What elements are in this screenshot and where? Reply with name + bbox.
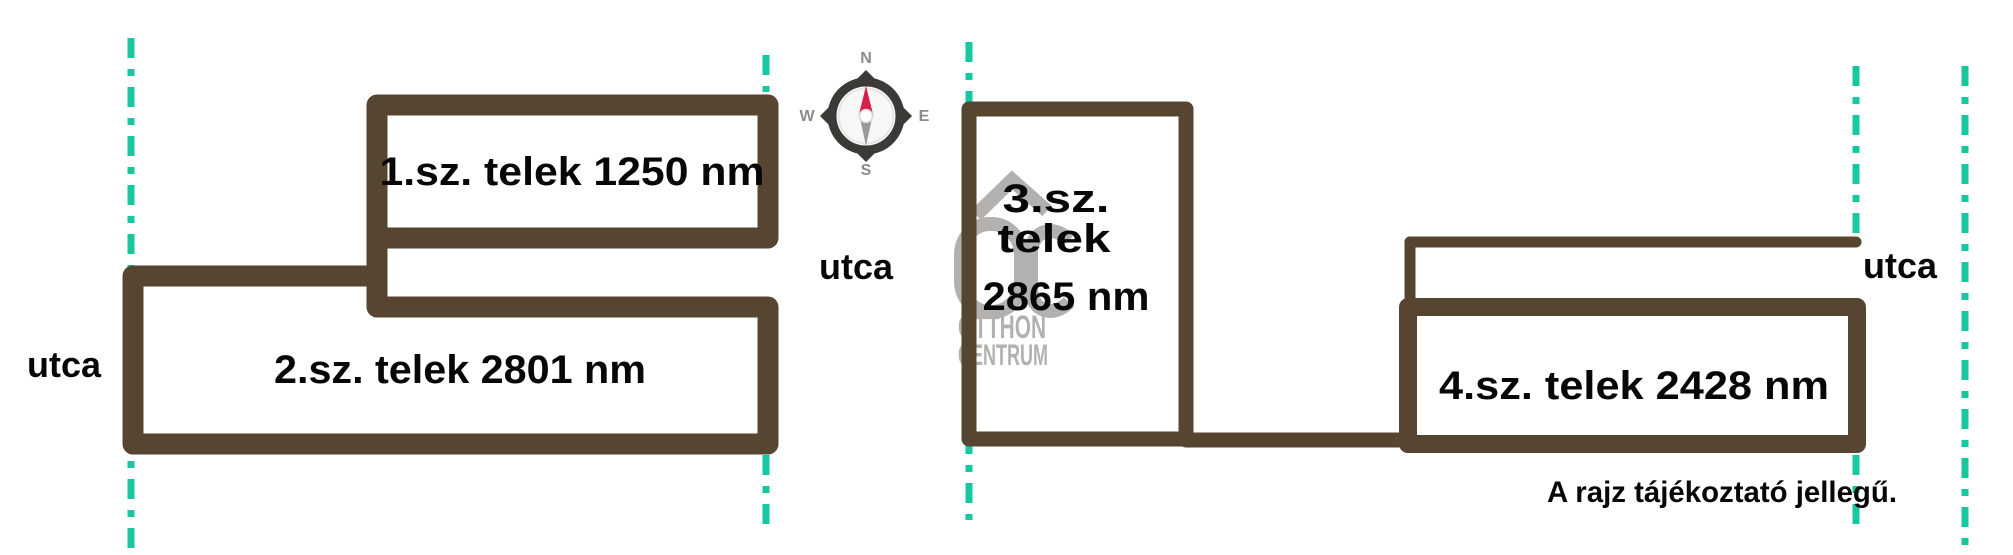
plot-3-label-line2: telek xyxy=(998,217,1112,261)
plot-3-label-line1: 3.sz. xyxy=(1003,177,1110,221)
plot-3-fill xyxy=(969,109,1186,439)
disclaimer-note: A rajz tájékoztató jellegű. xyxy=(1547,476,1897,509)
compass-label-n: N xyxy=(860,50,872,67)
compass-hub xyxy=(860,110,873,123)
compass-label-s: S xyxy=(861,162,872,179)
site-plan-svg: OTTHON CENTRUM N E S W 1.sz. telek 1250 … xyxy=(0,0,2013,555)
plot-sketch-canvas: OTTHON CENTRUM N E S W 1.sz. telek 1250 … xyxy=(0,0,2013,555)
compass-rose: N E S W xyxy=(799,50,929,179)
plot-3-label-line3: 2865 nm xyxy=(983,275,1150,319)
plot-1-label: 1.sz. telek 1250 nm xyxy=(380,150,765,194)
compass-label-e: E xyxy=(919,108,930,125)
street-label-right: utca xyxy=(1863,245,1938,286)
plot-4-label: 4.sz. telek 2428 nm xyxy=(1439,364,1829,408)
street-label-middle: utca xyxy=(819,246,894,287)
compass-label-w: W xyxy=(799,108,815,125)
street-label-left: utca xyxy=(27,344,102,385)
plot-2-label: 2.sz. telek 2801 nm xyxy=(274,348,646,392)
